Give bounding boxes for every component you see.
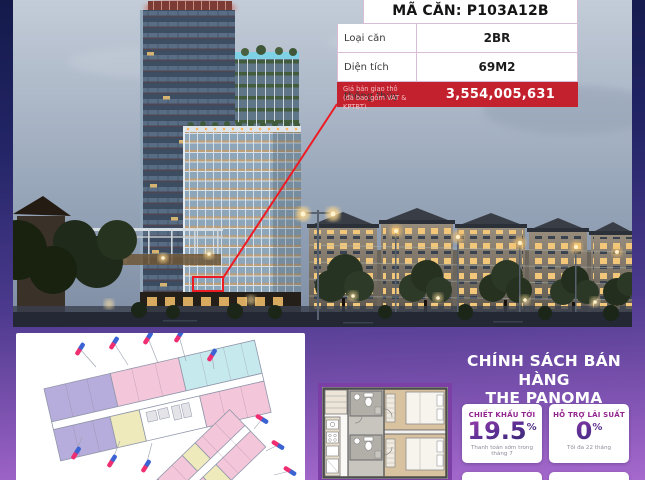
unit-spec-table: MÃ CĂN: P103A12B Loại căn 2BR Diện tích … <box>337 0 578 107</box>
row-value: 2BR <box>417 24 578 53</box>
policy-title: CHÍNH SÁCH BÁN HÀNG THE PANOMA <box>448 352 640 408</box>
floor-plate-panel <box>16 333 305 480</box>
policy-card-discount: CHIẾT KHẤU TỚI 19.5% Thanh toán sớm tron… <box>462 404 542 463</box>
unit-code-header: MÃ CĂN: P103A12B <box>363 0 578 24</box>
card-subtitle: Thanh toán sớm trong tháng 7 <box>462 445 542 457</box>
row-value: 69M2 <box>417 53 578 82</box>
bedroom-divider-wall <box>384 430 446 434</box>
unit-plan <box>322 387 448 479</box>
policy-card-interest: HỖ TRỢ LÃI SUẤT 0% Tối đa 22 tháng <box>549 404 629 463</box>
policy-card-partial <box>462 472 542 480</box>
row-label: Diện tích thông thủy <box>337 53 417 82</box>
table-row: Loại căn 2BR <box>337 24 578 53</box>
bathroom-2 <box>350 435 382 460</box>
row-label: Loại căn <box>337 24 417 53</box>
front-tower <box>183 121 301 300</box>
policy-title-line1: CHÍNH SÁCH BÁN HÀNG <box>448 352 640 389</box>
policy-card-partial <box>549 472 629 480</box>
price-row: Giá bán giao thô (đã bao gồm VAT & KPTBT… <box>337 82 578 107</box>
marketing-poster: MÃ CĂN: P103A12B Loại căn 2BR Diện tích … <box>0 0 645 480</box>
table-row: Diện tích thông thủy 69M2 <box>337 53 578 82</box>
bedroom-1 <box>384 389 446 430</box>
floor-plate-plan <box>16 333 305 480</box>
percent-sign: % <box>592 422 602 433</box>
kitchen <box>325 417 340 476</box>
price-label: Giá bán giao thô (đã bao gồm VAT & KPTBT… <box>337 82 423 107</box>
card-value: 19.5% <box>462 419 542 443</box>
price-value: 3,554,005,631 <box>423 82 578 107</box>
percent-sign: % <box>527 422 537 433</box>
card-value: 0% <box>549 419 629 443</box>
unit-plan-panel <box>318 383 452 480</box>
card-subtitle: Tối đa 22 tháng <box>549 445 629 451</box>
bathroom-1 <box>350 391 382 416</box>
bedroom-2 <box>384 434 446 477</box>
